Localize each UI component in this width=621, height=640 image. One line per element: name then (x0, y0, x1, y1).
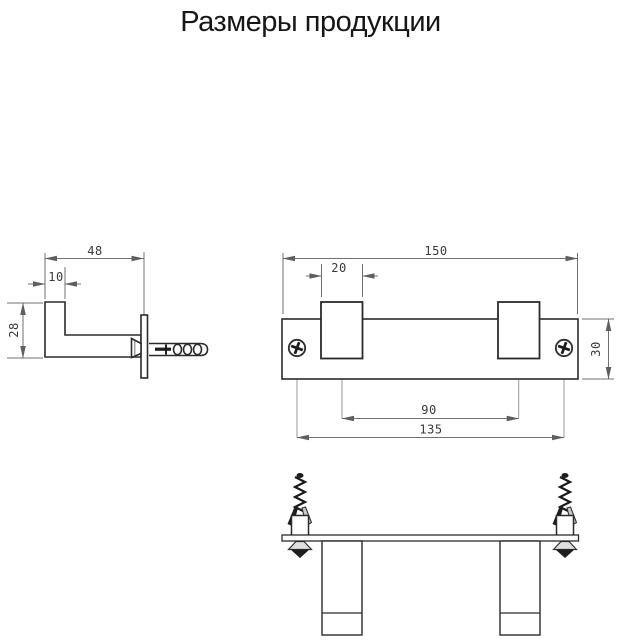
dim-hole-spacing: 135 (297, 423, 564, 438)
screw-head-base (291, 550, 310, 559)
dim-135-label: 135 (419, 423, 442, 437)
dim-hook-height: 28 (7, 303, 43, 358)
mounting-plate-top (282, 535, 579, 541)
plug-sleeve (292, 516, 309, 536)
phillips-screw-icon (289, 340, 305, 356)
plug-sleeve (557, 516, 574, 536)
side-view-drawing: 48 10 28 (7, 244, 208, 378)
plug-fin-bar (155, 348, 171, 351)
dim-10-label: 10 (48, 270, 63, 284)
hook-arm (500, 541, 540, 635)
plug-rib (174, 344, 182, 354)
dim-hook-thickness: 10 (28, 267, 81, 299)
plug-rib (184, 344, 192, 354)
screw-head-cone (554, 542, 577, 550)
screw-head-base (556, 550, 575, 559)
screw-thread (560, 477, 570, 512)
front-view-drawing: 150 20 (282, 244, 614, 438)
dim-28-label: 28 (7, 322, 21, 337)
hook-profile-outline (45, 302, 141, 357)
plug-rib (194, 344, 202, 354)
screw-tip (297, 473, 304, 478)
screw-head-cone (289, 542, 312, 550)
right-hook-top (500, 541, 540, 635)
wall-plate-side (141, 315, 148, 378)
phillips-screw-icon (556, 340, 572, 356)
dim-20-label: 20 (331, 261, 346, 275)
dim-90-label: 90 (421, 403, 436, 417)
dim-plate-height: 30 (582, 319, 614, 379)
screw-thread (295, 477, 305, 512)
dim-hook-width: 20 (306, 261, 378, 297)
wall-plug-icon (149, 344, 208, 356)
left-hook-front (321, 302, 363, 359)
wall-plug-assembly-icon (553, 473, 577, 558)
dim-30-label: 30 (589, 341, 603, 356)
right-hook-front (498, 302, 540, 359)
technical-drawing-canvas: Размеры продукции 48 10 (0, 0, 621, 640)
dim-hook-spacing: 90 (342, 403, 519, 419)
top-view-drawing (282, 473, 579, 635)
left-hook-top (322, 541, 362, 635)
dim-48-label: 48 (87, 244, 102, 258)
dim-150-label: 150 (424, 244, 447, 258)
wall-plug-assembly-icon (288, 473, 312, 558)
dimension-drawing: 48 10 28 (0, 0, 621, 640)
screw-tip (562, 473, 569, 478)
hook-arm (322, 541, 362, 635)
